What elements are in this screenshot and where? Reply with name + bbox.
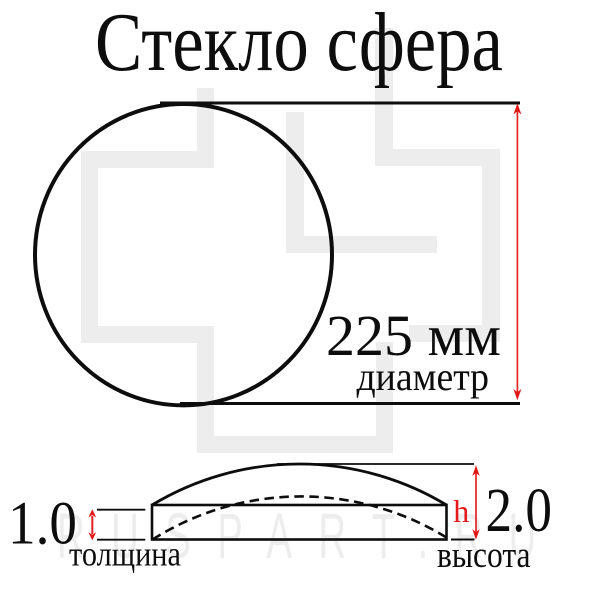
svg-text:диаметр: диаметр <box>357 354 490 399</box>
svg-text:h: h <box>453 493 469 529</box>
svg-text:толщина: толщина <box>69 536 181 574</box>
svg-text:высота: высота <box>437 534 531 575</box>
svg-text:1.0: 1.0 <box>8 490 77 558</box>
svg-text:Стекло сфера: Стекло сфера <box>95 0 503 89</box>
